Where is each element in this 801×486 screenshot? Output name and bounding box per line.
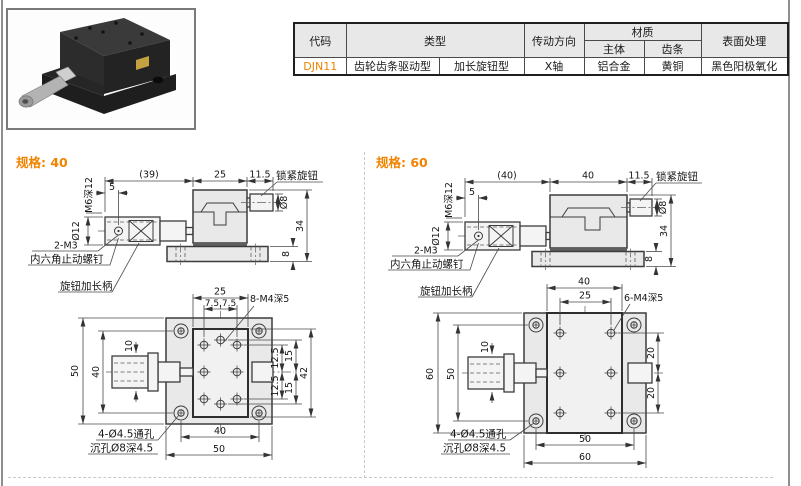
label-setscrew: 内六角止动螺钉 bbox=[30, 253, 104, 266]
label-handle: 旋钮加长柄 bbox=[420, 285, 473, 298]
dim-20-b: 20 bbox=[646, 387, 657, 399]
label-handle: 旋钮加长柄 bbox=[60, 280, 113, 293]
section-divider-vertical bbox=[364, 152, 365, 478]
dim-11-5: 11.5 bbox=[628, 171, 649, 182]
label-2m3: 2-M3 bbox=[414, 246, 438, 257]
label-8m4: 8-M4深5 bbox=[250, 294, 289, 305]
dim-5: 5 bbox=[469, 187, 475, 198]
label-thru-holes: 4-Ø4.5通孔 bbox=[98, 428, 155, 441]
dim-34: 34 bbox=[659, 225, 670, 237]
label-cbore: 沉孔Ø8深4.5 bbox=[90, 442, 153, 455]
label-cbore: 沉孔Ø8深4.5 bbox=[443, 442, 506, 455]
dim-20-a: 20 bbox=[646, 347, 657, 359]
dim-50-left: 50 bbox=[446, 368, 457, 380]
dim-d12: Ø12 bbox=[71, 221, 82, 241]
spec40-side-view bbox=[98, 190, 281, 265]
cell-type-2: 加长旋钮型 bbox=[439, 58, 524, 76]
drawing-spec-60: 规格: 60 bbox=[368, 150, 736, 484]
cell-surface: 黑色阳极氧化 bbox=[701, 58, 788, 76]
dim-5: 5 bbox=[109, 182, 115, 193]
label-setscrew: 内六角止动螺钉 bbox=[390, 258, 464, 271]
dim-8: 8 bbox=[281, 251, 292, 257]
dim-40-bottom: 40 bbox=[214, 426, 226, 437]
dim-125-b: 12.5 bbox=[270, 375, 281, 396]
dim-10: 10 bbox=[480, 341, 491, 353]
dim-10: 10 bbox=[124, 340, 135, 352]
label-thru-holes: 4-Ø4.5通孔 bbox=[450, 428, 507, 441]
label-lock-knob: 锁紧旋钮 bbox=[276, 169, 318, 182]
dim-60-bottom: 60 bbox=[579, 452, 591, 463]
dim-39: (39) bbox=[139, 170, 159, 181]
spec-table: 代码 类型 传动方向 材质 表面处理 主体 齿条 DJN11 齿轮齿条驱动型 加… bbox=[293, 22, 789, 76]
dim-7575: 7.5,7.5 bbox=[205, 299, 237, 309]
col-header-material: 材质 bbox=[584, 23, 701, 41]
dim-50-bottom: 50 bbox=[579, 434, 591, 445]
dim-d8: Ø8 bbox=[658, 201, 669, 215]
dim-25-top: 25 bbox=[579, 291, 591, 302]
catalog-page: 代码 类型 传动方向 材质 表面处理 主体 齿条 DJN11 齿轮齿条驱动型 加… bbox=[0, 0, 801, 486]
dim-40-top: 40 bbox=[578, 277, 590, 288]
label-lock-knob: 锁紧旋钮 bbox=[656, 170, 698, 183]
dim-60-left: 60 bbox=[425, 368, 436, 380]
dim-11-5: 11.5 bbox=[249, 170, 270, 181]
drawing-spec-40: 规格: 40 bbox=[10, 150, 364, 484]
dim-d8: Ø8 bbox=[279, 196, 290, 210]
cell-material-body: 铝合金 bbox=[584, 58, 644, 76]
spec60-title: 规格: 60 bbox=[376, 155, 428, 170]
spec60-side-view bbox=[458, 195, 660, 270]
spec60-plan-view bbox=[462, 306, 664, 440]
dim-15-a: 15 bbox=[284, 350, 295, 362]
dim-40: 40 bbox=[582, 171, 594, 182]
label-6m4: 6-M4深5 bbox=[624, 293, 663, 304]
dim-40-left: 40 bbox=[91, 366, 102, 378]
cell-direction: X轴 bbox=[524, 58, 584, 76]
cell-type-1: 齿轮齿条驱动型 bbox=[346, 58, 439, 76]
col-header-type: 类型 bbox=[346, 23, 524, 58]
dim-40p: (40) bbox=[497, 171, 517, 182]
col-header-surface: 表面处理 bbox=[701, 23, 788, 58]
dim-125-a: 12.5 bbox=[270, 347, 281, 368]
dim-m6: M6深12 bbox=[444, 182, 455, 218]
label-2m3: 2-M3 bbox=[54, 241, 78, 252]
dim-42: 42 bbox=[299, 367, 310, 379]
dim-50-left: 50 bbox=[70, 365, 81, 377]
table-row: DJN11 齿轮齿条驱动型 加长旋钮型 X轴 铝合金 黄铜 黑色阳极氧化 bbox=[294, 58, 788, 76]
col-header-material-body: 主体 bbox=[584, 41, 644, 58]
col-header-direction: 传动方向 bbox=[524, 23, 584, 58]
page-border-left bbox=[1, 0, 3, 486]
dim-25: 25 bbox=[214, 170, 226, 181]
dim-8: 8 bbox=[644, 256, 655, 262]
dim-25-top: 25 bbox=[214, 287, 226, 298]
col-header-material-rack: 齿条 bbox=[644, 41, 701, 58]
product-photo bbox=[8, 10, 194, 128]
dim-15-b: 15 bbox=[284, 382, 295, 394]
cell-code: DJN11 bbox=[294, 58, 346, 76]
col-header-code: 代码 bbox=[294, 23, 346, 58]
dim-m6: M6深12 bbox=[84, 177, 95, 213]
cell-material-rack: 黄铜 bbox=[644, 58, 701, 76]
dim-50-bottom: 50 bbox=[213, 444, 225, 455]
dim-d12: Ø12 bbox=[431, 226, 442, 246]
dim-34: 34 bbox=[295, 220, 306, 232]
spec40-title: 规格: 40 bbox=[16, 155, 68, 170]
product-photo-frame bbox=[6, 8, 196, 130]
